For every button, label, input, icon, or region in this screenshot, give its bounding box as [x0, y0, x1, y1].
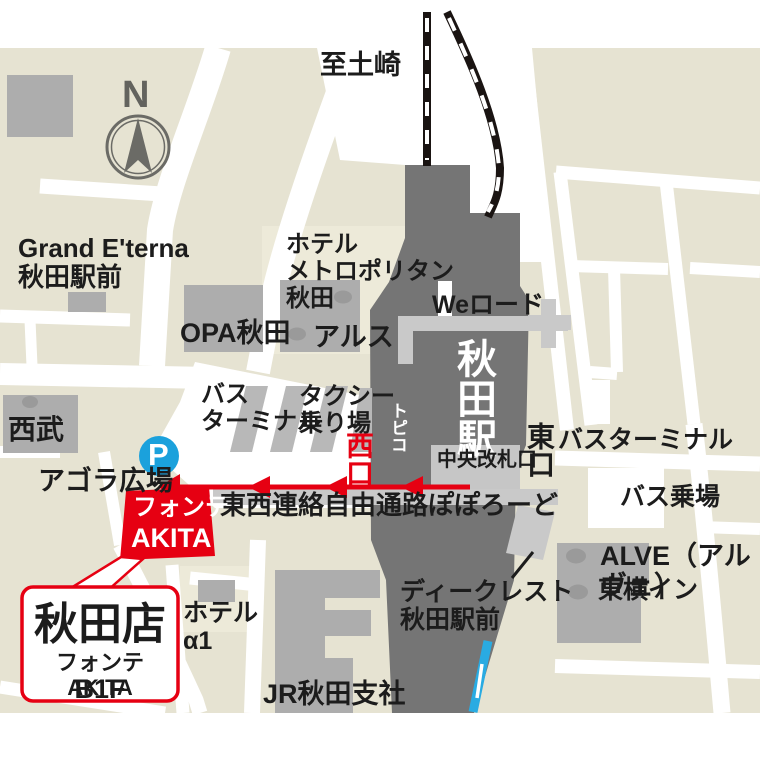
callout-store-name: 秋田店 [30, 600, 170, 649]
label-toyoko-inn: 東横イン [598, 576, 698, 604]
label-to-tsuchizaki: 至土崎 [320, 50, 401, 80]
label-jr-akita-branch: JR秋田支社 [263, 679, 406, 709]
fonte-building-line2: AKITA [131, 523, 212, 553]
compass-n-letter: N [122, 74, 149, 117]
label-popolo-road: 東西連絡自由通路ぽぽろーど [220, 491, 558, 520]
jr-akita-building [275, 570, 380, 598]
label-west-exit: 西口 [344, 431, 372, 487]
parking-icon-letter: P [148, 438, 169, 473]
label-central-ticket-gate: 中央改札口 [437, 449, 537, 471]
label-taxi-stand: タクシー 乗り場 [299, 384, 395, 438]
label-hotel-alpha1: ホテル α1 [183, 599, 258, 655]
callout-floor: B1F [24, 674, 176, 704]
label-bus-stop: バス乗場 [620, 483, 720, 511]
label-bus-terminal-east: バスターミナル [558, 426, 733, 454]
label-akita-station: 秋田駅 [453, 338, 493, 458]
label-grand-eterna: Grand E'terna 秋田駅前 [18, 234, 189, 292]
label-hotel-metropolitan: ホテル メトロポリタン 秋田 [286, 232, 454, 313]
label-arusu: アルス [313, 322, 394, 352]
label-east-exit: 東口 [525, 422, 553, 478]
road-west-main [0, 374, 210, 378]
fonte-building-line1: フォンテ [133, 495, 229, 522]
label-d-crest: ディークレスト 秋田駅前 [400, 578, 573, 634]
access-map: 至土崎 N Grand E'terna 秋田駅前 ホテル メトロポリタン 秋田 … [0, 0, 760, 760]
label-opa-akita: OPA秋田 [180, 318, 291, 348]
label-we-road: Weロード [432, 291, 544, 319]
label-seibu: 西武 [8, 414, 64, 445]
